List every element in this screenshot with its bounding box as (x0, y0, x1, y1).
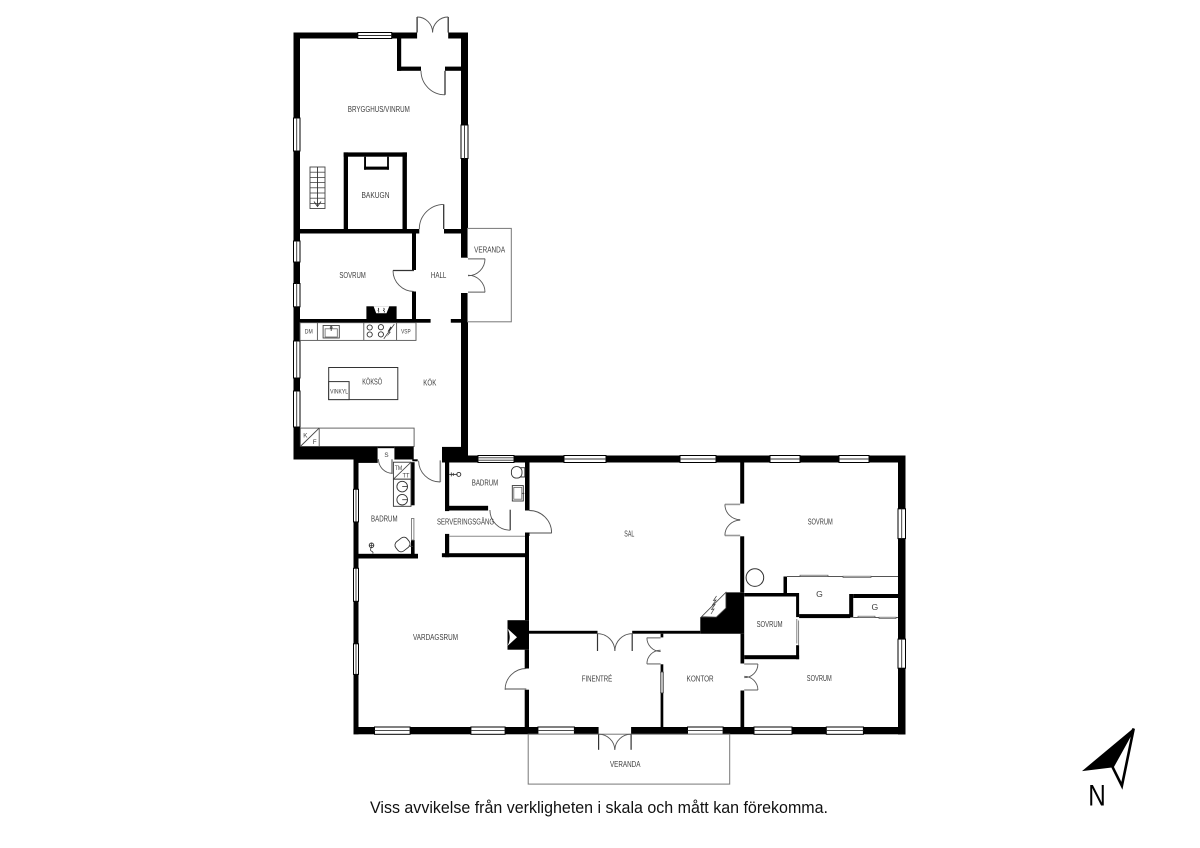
svg-text:SERVERINGSGÅNG: SERVERINGSGÅNG (437, 516, 494, 526)
svg-text:TT: TT (403, 473, 410, 480)
svg-text:DM: DM (305, 328, 313, 335)
svg-text:SOVRUM: SOVRUM (339, 270, 366, 280)
svg-text:Viss avvikelse från verklighet: Viss avvikelse från verkligheten i skala… (370, 798, 828, 817)
svg-text:N: N (1088, 779, 1106, 812)
svg-text:BRYGGHUS/VINRUM: BRYGGHUS/VINRUM (348, 104, 410, 114)
svg-text:HALL: HALL (431, 270, 447, 280)
svg-text:FINENTRÉ: FINENTRÉ (582, 674, 613, 684)
svg-text:VINKYL: VINKYL (330, 388, 348, 395)
svg-text:TM: TM (395, 465, 403, 472)
svg-text:VERANDA: VERANDA (610, 759, 641, 769)
svg-text:F: F (313, 439, 317, 446)
svg-text:S: S (384, 452, 388, 459)
svg-text:VARDAGSRUM: VARDAGSRUM (413, 632, 458, 642)
svg-text:G: G (816, 589, 823, 599)
svg-text:G: G (871, 602, 878, 612)
svg-text:BAKUGN: BAKUGN (362, 190, 390, 200)
svg-text:VSP: VSP (401, 328, 411, 335)
svg-text:VERANDA: VERANDA (474, 244, 505, 254)
svg-text:BADRUM: BADRUM (371, 513, 398, 523)
svg-text:SOVRUM: SOVRUM (757, 619, 783, 629)
svg-text:SAL: SAL (624, 528, 634, 538)
svg-text:KÖKSÖ: KÖKSÖ (362, 376, 382, 386)
svg-text:KONTOR: KONTOR (687, 674, 714, 684)
svg-text:BADRUM: BADRUM (472, 478, 499, 488)
svg-text:SOVRUM: SOVRUM (807, 673, 832, 683)
svg-text:SOVRUM: SOVRUM (808, 516, 833, 526)
svg-text:KÖK: KÖK (423, 377, 436, 387)
